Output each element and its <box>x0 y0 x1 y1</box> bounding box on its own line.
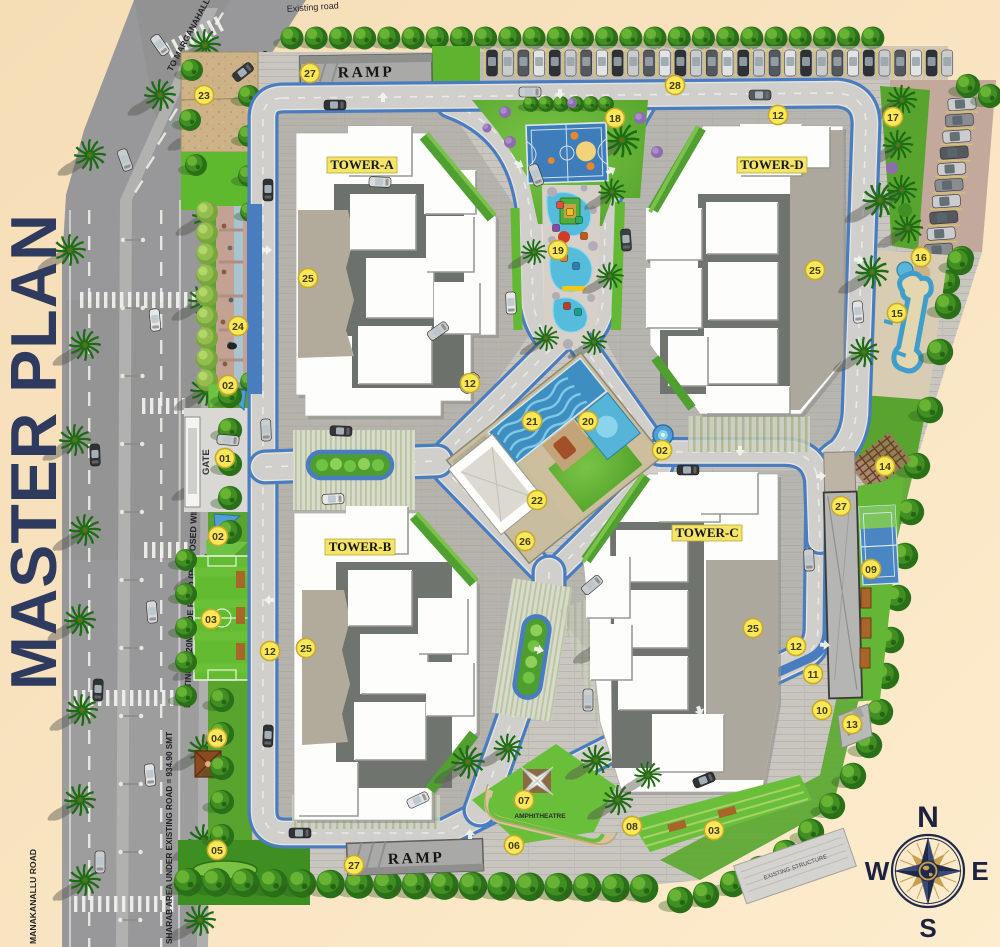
svg-text:03: 03 <box>708 825 720 837</box>
svg-text:S: S <box>919 913 936 943</box>
svg-text:02: 02 <box>212 531 224 543</box>
svg-text:18: 18 <box>609 113 621 125</box>
svg-text:05: 05 <box>211 845 223 857</box>
svg-text:N: N <box>917 801 939 834</box>
svg-text:19: 19 <box>552 245 564 257</box>
svg-text:16: 16 <box>915 252 927 264</box>
svg-text:28: 28 <box>669 80 681 92</box>
svg-text:TOWER-A: TOWER-A <box>330 157 394 172</box>
svg-text:SHARAB AREA UNDER EXISTING ROA: SHARAB AREA UNDER EXISTING ROAD = 934.90… <box>165 732 174 944</box>
svg-text:AMPHITHEATRE: AMPHITHEATRE <box>514 813 566 820</box>
svg-text:09: 09 <box>865 564 877 576</box>
svg-text:20: 20 <box>582 416 594 428</box>
svg-text:27: 27 <box>835 501 847 513</box>
svg-text:12: 12 <box>772 110 784 122</box>
svg-text:25: 25 <box>747 623 759 635</box>
svg-text:26: 26 <box>519 536 531 548</box>
svg-text:04: 04 <box>211 733 223 745</box>
svg-text:22: 22 <box>531 495 543 507</box>
svg-text:10: 10 <box>816 705 828 717</box>
svg-text:12: 12 <box>790 641 802 653</box>
svg-text:12: 12 <box>264 646 276 658</box>
svg-text:27: 27 <box>348 860 360 872</box>
svg-text:06: 06 <box>508 840 520 852</box>
svg-text:GATE: GATE <box>201 449 212 475</box>
svg-text:TOWER-B: TOWER-B <box>329 539 392 554</box>
svg-text:14: 14 <box>879 461 891 473</box>
svg-text:02: 02 <box>656 445 668 457</box>
svg-text:15: 15 <box>891 308 903 320</box>
svg-text:TOWER-C: TOWER-C <box>675 525 738 540</box>
svg-text:03: 03 <box>205 614 217 626</box>
svg-text:27: 27 <box>304 68 316 80</box>
svg-text:RAMP: RAMP <box>388 849 445 868</box>
svg-text:07: 07 <box>518 795 530 807</box>
svg-text:25: 25 <box>809 265 821 277</box>
svg-text:E: E <box>971 856 988 886</box>
svg-text:25: 25 <box>300 643 312 655</box>
svg-text:23: 23 <box>198 90 210 102</box>
svg-text:24: 24 <box>232 321 244 333</box>
svg-text:17: 17 <box>887 112 899 124</box>
svg-text:25: 25 <box>302 273 314 285</box>
svg-text:13: 13 <box>846 719 858 731</box>
svg-text:21: 21 <box>526 416 538 428</box>
svg-text:11: 11 <box>807 669 818 681</box>
svg-text:08: 08 <box>626 821 638 833</box>
svg-text:TOWER-D: TOWER-D <box>740 157 803 172</box>
svg-text:01: 01 <box>219 453 231 465</box>
svg-text:W: W <box>865 856 890 886</box>
svg-text:MASTER PLAN: MASTER PLAN <box>0 213 70 690</box>
svg-text:02: 02 <box>222 380 234 392</box>
svg-text:12: 12 <box>464 378 476 390</box>
svg-text:MANAKANALLU ROAD: MANAKANALLU ROAD <box>28 849 38 944</box>
svg-text:RAMP: RAMP <box>338 63 395 81</box>
